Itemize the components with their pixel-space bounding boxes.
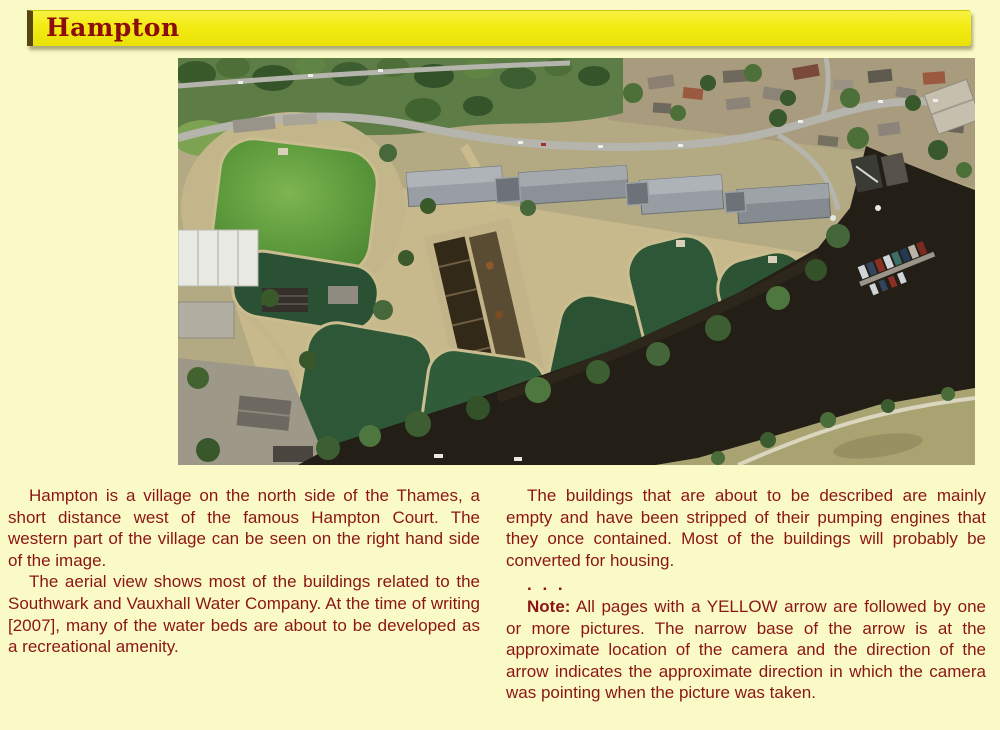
note-label: Note: bbox=[527, 597, 570, 616]
red-car bbox=[541, 143, 546, 146]
left-paragraph-2: The aerial view shows most of the buildi… bbox=[8, 571, 480, 657]
aerial-photo-svg bbox=[178, 58, 975, 465]
note-paragraph: Note: All pages with a YELLOW arrow are … bbox=[506, 596, 986, 704]
left-paragraph-1: Hampton is a village on the north side o… bbox=[8, 485, 480, 571]
right-paragraph-1: The buildings that are about to be descr… bbox=[506, 485, 986, 571]
page-title: Hampton bbox=[33, 11, 180, 45]
aerial-photo bbox=[178, 58, 975, 465]
header-bar: Hampton bbox=[27, 10, 971, 46]
note-text: All pages with a YELLOW arrow are follow… bbox=[506, 597, 986, 702]
left-text-column: Hampton is a village on the north side o… bbox=[8, 485, 480, 658]
right-text-column: The buildings that are about to be descr… bbox=[506, 485, 986, 704]
ellipsis-separator: . . . bbox=[506, 574, 986, 596]
